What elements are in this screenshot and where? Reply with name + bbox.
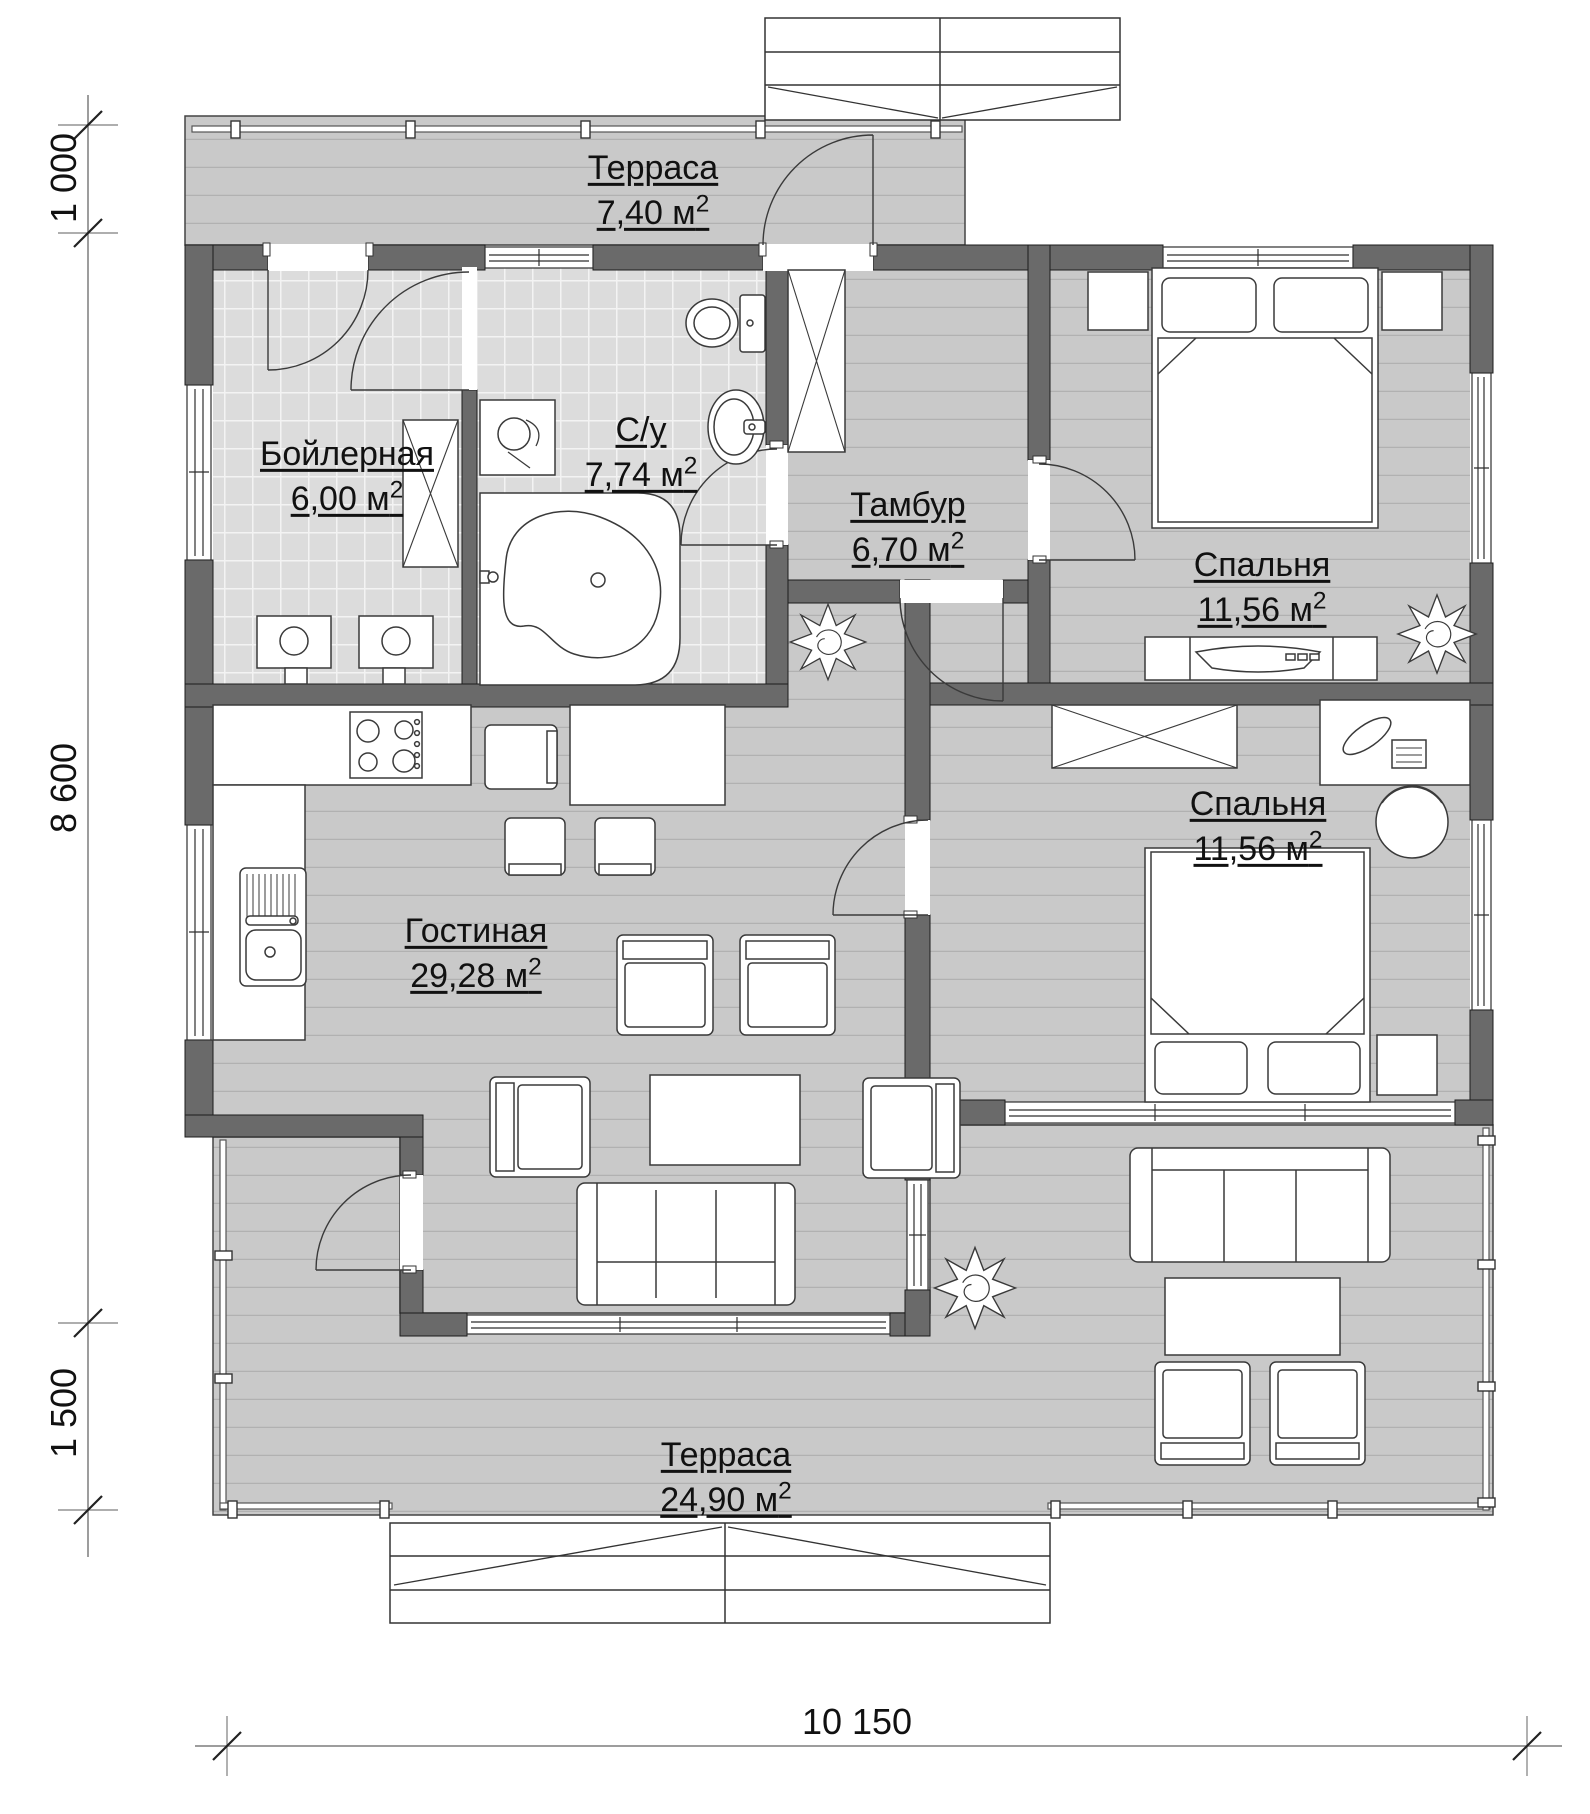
plant [790, 604, 865, 679]
room-label-boiler: Бойлерная 6,00 м2 [260, 434, 434, 520]
railing-top [192, 126, 962, 132]
room-area: 24,90 м2 [660, 1481, 792, 1519]
plant [1398, 595, 1476, 673]
floor-plan-drawing [0, 0, 1590, 1814]
wardrobe [1052, 705, 1237, 768]
window [907, 1180, 928, 1290]
floor-plan-page: Терраса 7,40 м2 Бойлерная 6,00 м2 С/у 7,… [0, 0, 1590, 1814]
shower-unit [480, 400, 555, 475]
railing-bottom-left [220, 1503, 392, 1509]
room-area: 7,74 м2 [585, 456, 698, 494]
room-name: Бойлерная [260, 435, 434, 473]
railing-right [1483, 1128, 1489, 1510]
room-name: Спальня [1190, 785, 1327, 823]
sofa [577, 1183, 795, 1305]
room-label-vestibule: Тамбур 6,70 м2 [850, 485, 965, 571]
outdoor-chair [1270, 1362, 1365, 1465]
window [1005, 1102, 1455, 1123]
room-area: 7,40 м2 [597, 194, 710, 232]
nightstand [1382, 272, 1442, 330]
dimension-label-8600: 8 600 [43, 743, 85, 833]
room-label-bathroom: С/у 7,74 м2 [585, 410, 698, 496]
bathtub [480, 493, 680, 685]
window [1472, 373, 1491, 563]
room-label-living: Гостиная 29,28 м2 [405, 911, 548, 997]
room-name: Терраса [661, 1436, 791, 1474]
outdoor-sofa [1130, 1148, 1390, 1262]
window [485, 247, 593, 268]
room-name: Тамбур [850, 486, 965, 524]
bed-double [1145, 848, 1370, 1102]
room-name: Терраса [588, 149, 718, 187]
room-name: Гостиная [405, 912, 548, 950]
armchair [617, 935, 713, 1035]
window [1163, 247, 1353, 268]
room-area: 11,56 м2 [1198, 591, 1327, 629]
dining-chair [485, 725, 557, 789]
dimension-label-10150: 10 150 [802, 1701, 912, 1743]
nightstand [1088, 272, 1148, 330]
room-label-terrace-top: Терраса 7,40 м2 [588, 148, 718, 234]
room-area: 6,00 м2 [291, 480, 404, 518]
armchair [740, 935, 835, 1035]
desk-chair [1376, 786, 1448, 858]
dining-chair [505, 818, 565, 875]
toilet [686, 295, 765, 352]
window [187, 385, 211, 560]
room-area: 6,70 м2 [852, 531, 965, 569]
room-name: Спальня [1194, 546, 1331, 584]
desk [1320, 700, 1470, 785]
room-label-bedroom-2: Спальня 11,56 м2 [1190, 784, 1327, 870]
room-area: 29,28 м2 [410, 957, 542, 995]
entrance-steps-top [765, 18, 1120, 120]
room-name: С/у [615, 411, 666, 449]
plant [935, 1248, 1016, 1329]
outdoor-table [1165, 1278, 1340, 1355]
entrance-steps-bottom [390, 1523, 1050, 1623]
coffee-table [650, 1075, 800, 1165]
window [467, 1315, 890, 1334]
dining-table [570, 705, 725, 805]
closet [788, 270, 845, 452]
window [1472, 820, 1491, 1010]
kitchen-sink [240, 868, 306, 986]
room-label-bedroom-1: Спальня 11,56 м2 [1194, 545, 1331, 631]
room-area: 11,56 м2 [1194, 830, 1323, 868]
railing-bottom-right [1048, 1503, 1490, 1509]
dimension-label-1500: 1 500 [43, 1368, 85, 1458]
stove [350, 712, 422, 778]
dining-chair [595, 818, 655, 875]
armchair [863, 1078, 960, 1178]
room-label-terrace-bottom: Терраса 24,90 м2 [660, 1435, 792, 1521]
bed-double [1152, 268, 1378, 528]
outdoor-chair [1155, 1362, 1250, 1465]
dimension-label-1000: 1 000 [43, 133, 85, 223]
tv-dresser [1145, 637, 1377, 680]
railing-left [220, 1140, 226, 1510]
washbasin [708, 390, 765, 464]
window [187, 825, 211, 1040]
terrace-top-deck [185, 116, 965, 245]
armchair [490, 1077, 590, 1177]
nightstand [1377, 1035, 1437, 1095]
